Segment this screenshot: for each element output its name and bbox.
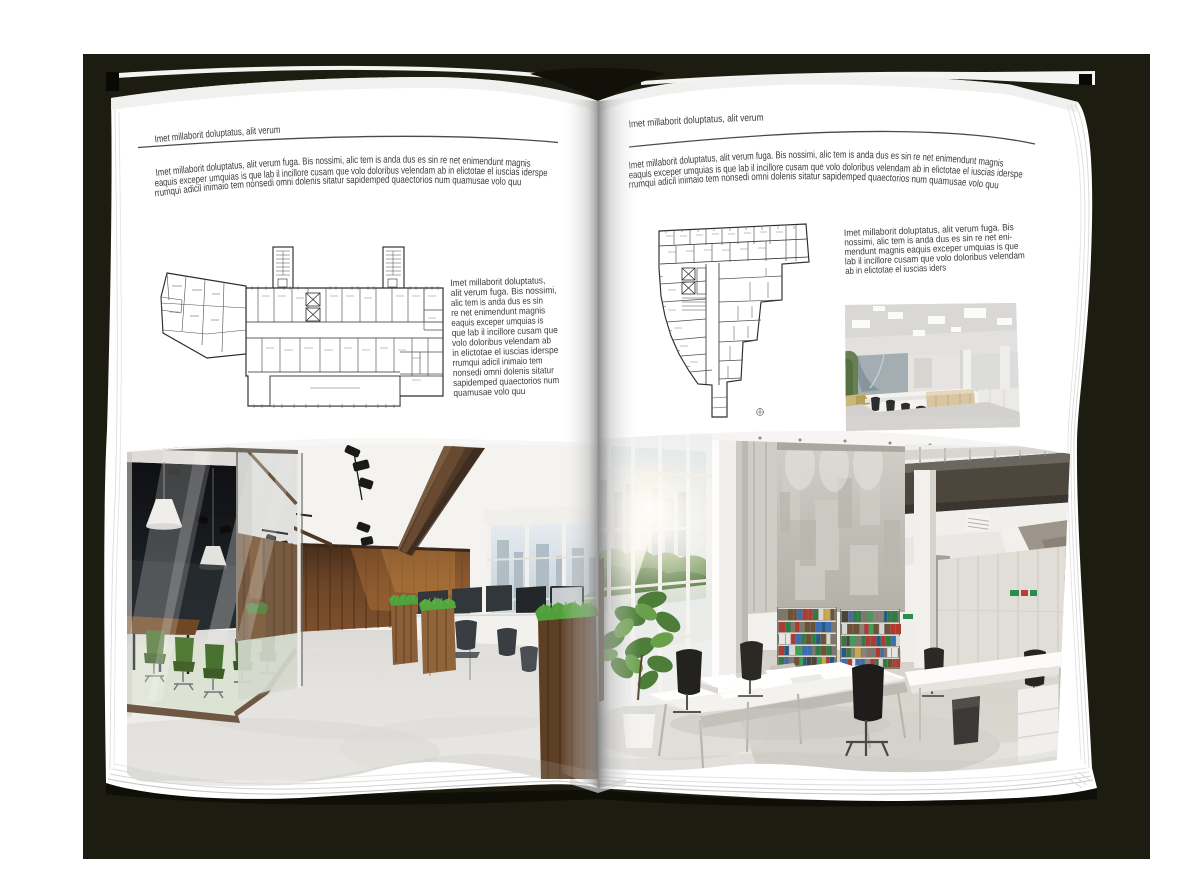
svg-text:quamusae volo quu: quamusae volo quu [453,386,525,398]
